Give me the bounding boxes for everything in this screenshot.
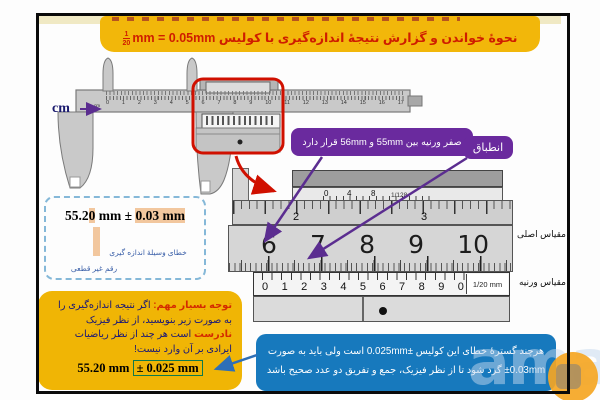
main-scale-number: 9: [408, 230, 424, 259]
cm-tiny-label: cm: [94, 103, 100, 108]
inch-vernier-0: 0: [324, 189, 328, 198]
main-scale-major-ticks: [268, 256, 513, 271]
main-scale-number: 7: [310, 230, 326, 259]
beam-number: 6: [202, 100, 205, 106]
vernier-scale-label: مقیاس ورنیه: [514, 277, 566, 288]
zoom-slider-bottom: [253, 296, 510, 322]
main-scale-number: 6: [261, 230, 277, 259]
inch-label-2: 2: [293, 211, 299, 223]
beam-number: 2: [138, 100, 141, 106]
beam-number: 13: [322, 100, 328, 106]
beam-cm-numbers: 01234567891011121314151617: [106, 100, 404, 106]
slide: نحوهٔ خواندن و گزارش نتیجهٔ اندازه‌گیری …: [0, 0, 600, 400]
inch-vernier-4: 4: [347, 189, 351, 198]
boxed-error: ± 0.025 mm: [133, 360, 203, 376]
uncertain-digit-label: رقم غیر قطعی: [58, 264, 130, 273]
beam-number: 1: [122, 100, 125, 106]
beam-number: 7: [217, 100, 220, 106]
inch-vernier-8: 8: [371, 189, 375, 198]
vernier-plate: 01234567890 1/20 mm: [253, 272, 510, 296]
beam-number: 5: [186, 100, 189, 106]
watermark-logo-square: [556, 364, 581, 389]
zoom-slider-top: [292, 170, 503, 187]
cm-scale-label: cm: [52, 101, 70, 117]
vernier-number: 3: [321, 281, 327, 293]
main-scale-numbers: 678910: [261, 230, 489, 259]
inch-label-3: 3: [421, 211, 427, 223]
error-value: 0.03 mm: [135, 208, 185, 223]
beam-number: 16: [379, 100, 385, 106]
beam-number: 8: [233, 100, 236, 106]
vernier-number: 1: [282, 281, 288, 293]
clipped-text-dashes: [112, 17, 460, 21]
incorrect-result: 55.20 mm ± 0.025 mm: [48, 361, 232, 376]
measurement-box: 55.20 mm ± 0.03 mm خطای وسیلهٔ اندازه گی…: [44, 196, 206, 280]
vernier-number: 0: [458, 281, 464, 293]
beam-number: 10: [265, 100, 271, 106]
inch-beam-major-ticks: [233, 201, 512, 214]
callout-vernier-zero: صفر ورنیه بین 55mm و 56mm قرار دارد: [291, 128, 473, 156]
vernier-number: 8: [419, 281, 425, 293]
main-scale-number: 10: [457, 230, 489, 259]
main-scale-number: 8: [359, 230, 375, 259]
measurement-value: 55.20 mm ± 0.03 mm: [46, 208, 204, 224]
vernier-number: 9: [438, 281, 444, 293]
small-vernier-ticks: [206, 116, 276, 125]
slider-screw-dot: [379, 307, 387, 315]
slider-edge: [362, 297, 364, 321]
beam-number: 9: [249, 100, 252, 106]
beam-number: 17: [398, 100, 404, 106]
fraction: 120: [123, 31, 131, 47]
beam-number: 3: [154, 100, 157, 106]
vernier-number: 7: [399, 281, 405, 293]
important-note-box: توجه بسیار مهم: اگر نتیجه اندازه‌گیری را…: [38, 291, 242, 390]
beam-number: 12: [303, 100, 309, 106]
beam-number: 4: [170, 100, 173, 106]
vernier-number: 0: [262, 281, 268, 293]
page-title: نحوهٔ خواندن و گزارش نتیجهٔ اندازه‌گیری …: [123, 30, 518, 47]
vernier-number: 6: [379, 281, 385, 293]
vernier-numbers: 01234567890: [262, 281, 464, 293]
zoom-left-block: [232, 168, 249, 202]
beam-inch-ticks: [106, 91, 404, 95]
error-label: خطای وسیلهٔ اندازه گیری: [94, 248, 202, 257]
vernier-unit: 1/20 mm: [466, 274, 508, 294]
inch-vernier-unit: 1/128: [391, 192, 407, 199]
vernier-number: 5: [360, 281, 366, 293]
main-scale-beam: 678910: [228, 225, 513, 272]
beam-number: 0: [106, 100, 109, 106]
main-scale-label: مقیاس اصلی: [514, 229, 566, 240]
beam-number: 15: [360, 100, 366, 106]
note-text: توجه بسیار مهم: اگر نتیجه اندازه‌گیری را…: [48, 299, 232, 358]
vernier-ticks: [262, 273, 466, 280]
beam-number: 11: [284, 100, 290, 106]
beam-number: 14: [341, 100, 347, 106]
callout-alignment: انطباق: [463, 136, 513, 159]
inch-beam: 2 3: [232, 200, 513, 225]
vernier-number: 2: [301, 281, 307, 293]
vernier-number: 4: [340, 281, 346, 293]
title-banner: نحوهٔ خواندن و گزارش نتیجهٔ اندازه‌گیری …: [100, 16, 540, 52]
